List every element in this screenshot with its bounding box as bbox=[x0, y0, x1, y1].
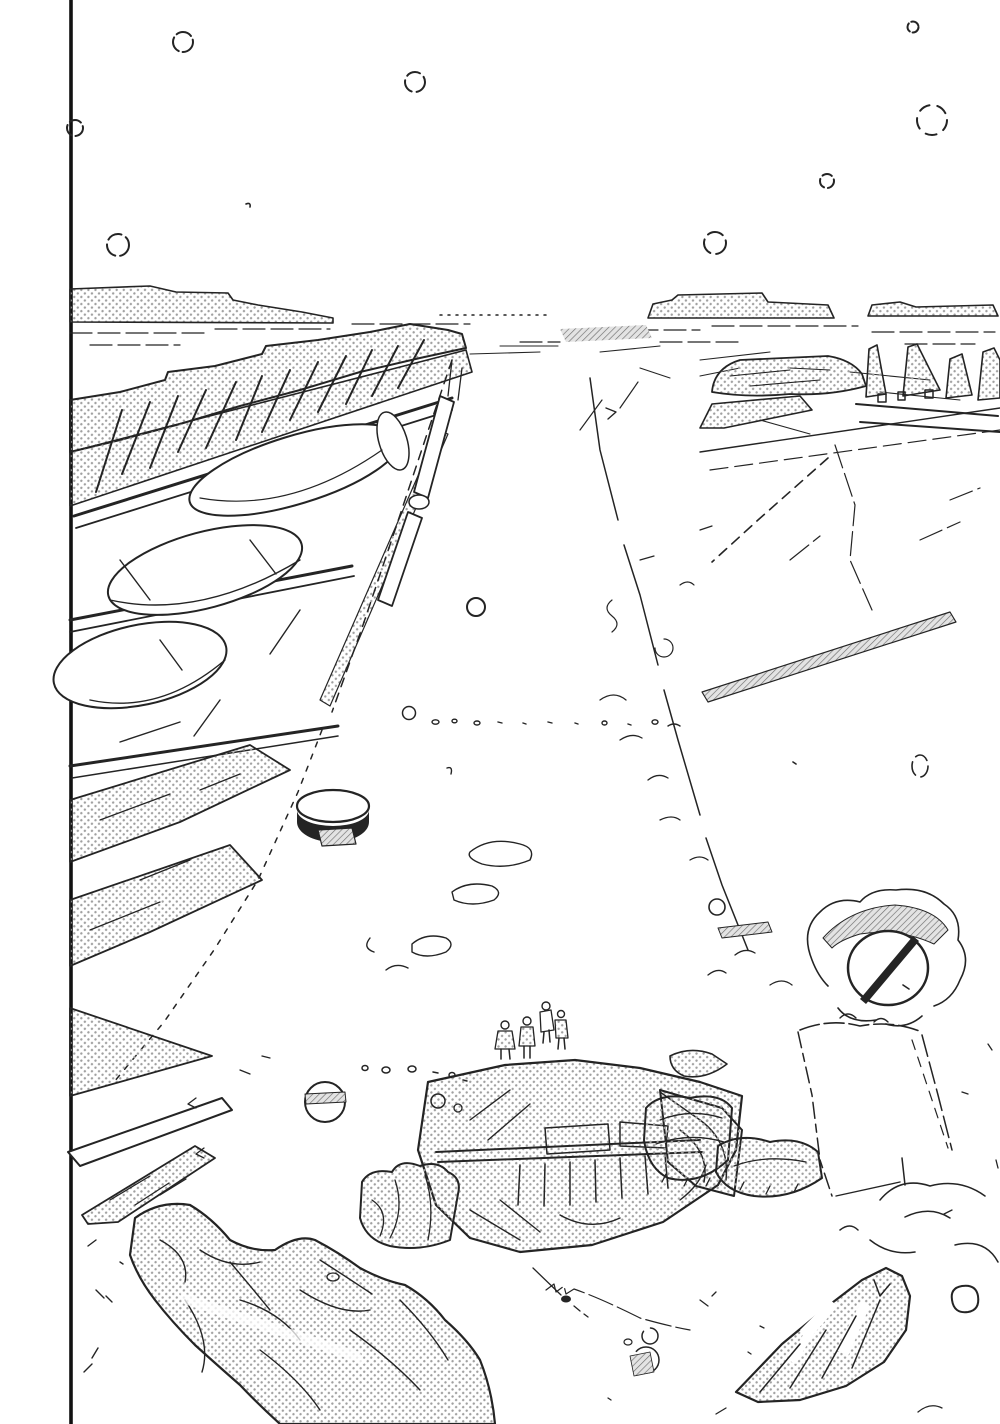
ball-hatch-band bbox=[305, 1092, 346, 1104]
cap-base-hatch bbox=[318, 828, 356, 846]
needle-tip bbox=[561, 1296, 571, 1303]
figure-body bbox=[540, 1010, 554, 1032]
figure-body bbox=[555, 1020, 568, 1038]
scene-drawing bbox=[0, 0, 1000, 1424]
manga-page bbox=[0, 0, 1000, 1424]
dark-cap-disc bbox=[297, 790, 369, 822]
figure-body bbox=[519, 1027, 535, 1046]
rubble-hatch-patch bbox=[630, 1352, 654, 1376]
pile-left-lump bbox=[360, 1163, 459, 1248]
pipe-joint bbox=[409, 495, 429, 509]
figure-body bbox=[495, 1031, 515, 1049]
